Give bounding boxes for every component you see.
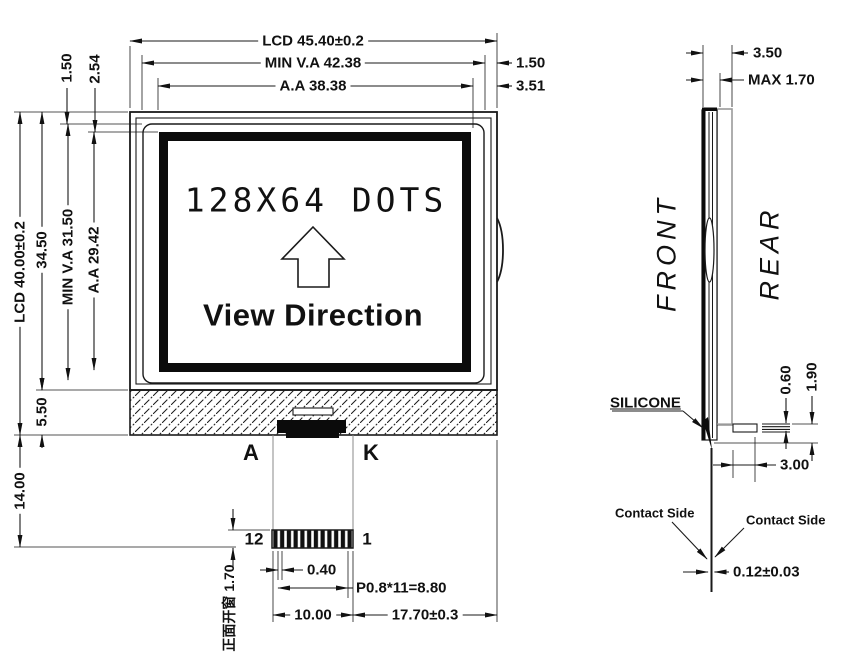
- dim-contact-height: 1.90: [805, 362, 820, 391]
- dim-tail-length: 14.00: [12, 468, 29, 514]
- dim-backlight-height: 5.50: [34, 393, 51, 430]
- fpc-pin-strip: [272, 530, 353, 548]
- dim-lcd-width: LCD 45.40±0.2: [258, 33, 368, 50]
- backlight-slot: [293, 408, 333, 415]
- pin-12-label: 12: [245, 531, 264, 548]
- dim-total-thickness: 3.50: [753, 46, 782, 61]
- dim-pin-width: 0.40: [307, 563, 336, 578]
- dim-aa-height: A.A 29.42: [86, 223, 103, 298]
- side-front-label: FRONT: [654, 194, 681, 312]
- front-window-note: 正面开窗 1.70: [222, 564, 236, 651]
- contact-side-left-label: Contact Side: [615, 507, 694, 520]
- pin-1-label: 1: [362, 531, 371, 548]
- dim-va-width: MIN V.A 42.38: [261, 55, 365, 72]
- side-rear-label: REAR: [757, 205, 784, 300]
- leader-lines: [612, 411, 744, 559]
- view-direction-text: View Direction: [203, 300, 423, 331]
- led-connector-foot: [286, 433, 339, 438]
- dim-edge-to-aa-right: 3.51: [516, 79, 545, 94]
- dim-max-thickness: MAX 1.70: [748, 73, 815, 88]
- dim-fpc-width: 10.00: [290, 607, 336, 624]
- dim-va-height: MIN V.A 31.50: [60, 205, 77, 309]
- dim-edge-to-va-right: 1.50: [516, 56, 545, 71]
- side-lens-detail: [705, 218, 714, 282]
- dim-edge-to-va-top: 1.50: [60, 53, 75, 82]
- silicone-label: SILICONE: [610, 396, 681, 411]
- anode-label: A: [243, 442, 259, 464]
- dim-lcd-height: LCD 40.00±0.2: [12, 217, 29, 327]
- dim-pin-pitch: P0.8*11=8.80: [356, 581, 447, 596]
- screen-resolution-text: 128X64 DOTS: [185, 184, 448, 217]
- side-rear-layer: [717, 109, 732, 425]
- dim-aa-width: A.A 38.38: [276, 78, 351, 95]
- dim-edge-to-aa-top: 2.54: [88, 54, 103, 83]
- dim-contact-length: 3.00: [780, 458, 809, 473]
- lcd-module-drawing: LCD 45.40±0.2 MIN V.A 42.38 A.A 38.38 1.…: [0, 0, 845, 660]
- led-connector-block: [277, 420, 346, 433]
- dim-fpc-thickness: 0.12±0.03: [733, 565, 800, 580]
- dim-contact-thickness: 0.60: [779, 365, 794, 394]
- contact-strip: [733, 424, 757, 432]
- cathode-label: K: [363, 442, 379, 464]
- dim-fpc-offset: 17.70±0.3: [388, 607, 463, 624]
- contact-hatch: [762, 424, 790, 432]
- dim-glass-height: 34.50: [34, 227, 51, 273]
- contact-side-right-label: Contact Side: [746, 514, 825, 527]
